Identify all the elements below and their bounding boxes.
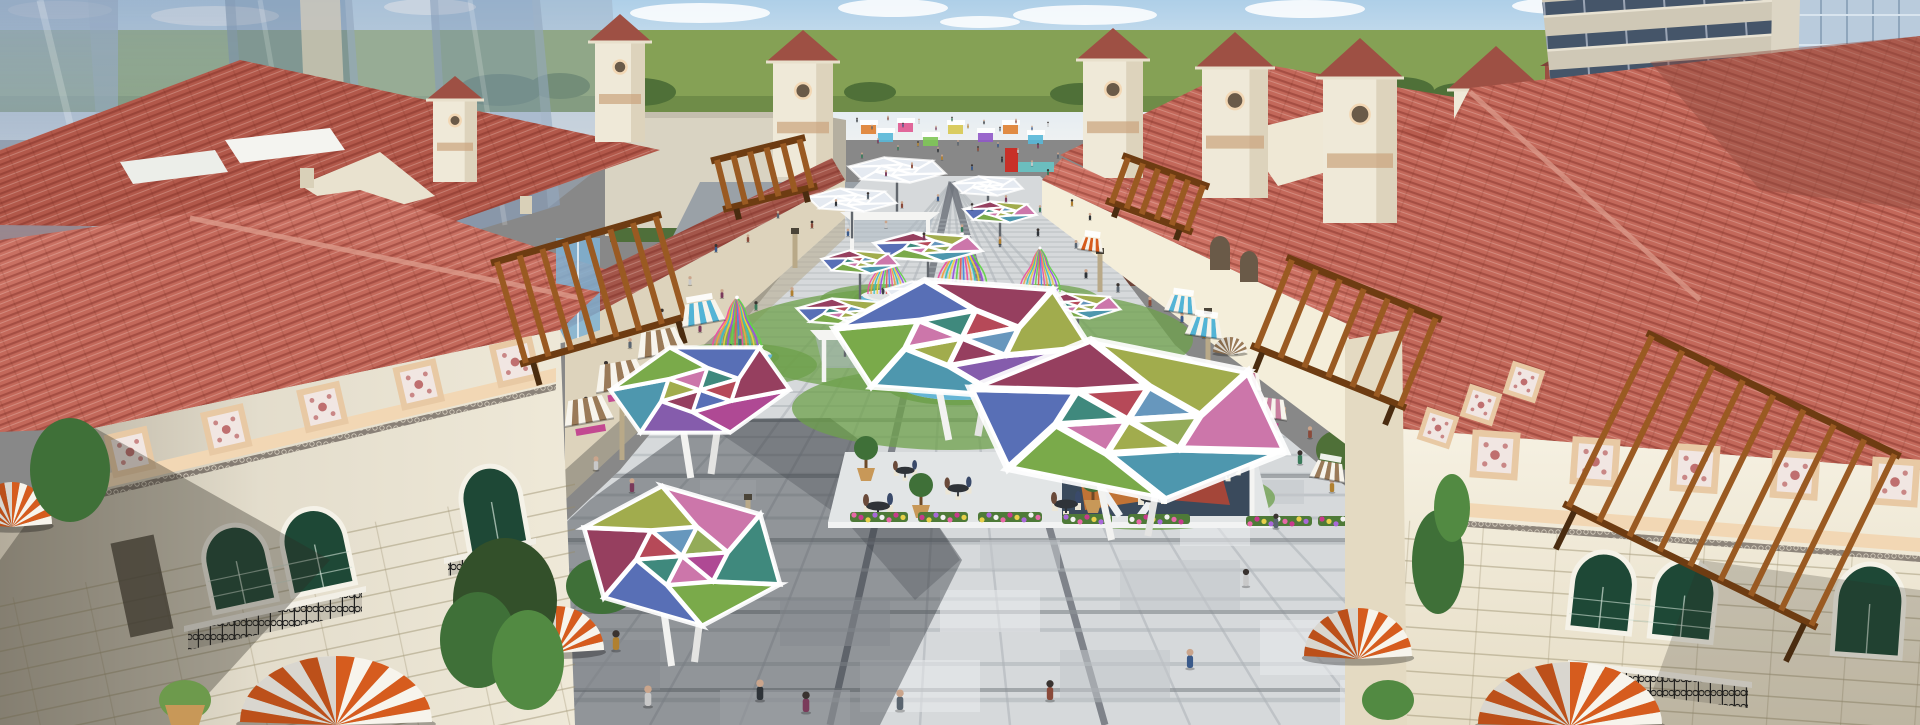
person-head	[896, 689, 904, 697]
person-head	[1037, 143, 1039, 145]
person-head	[923, 232, 926, 235]
person-body	[885, 223, 887, 228]
seated-person	[893, 461, 898, 471]
person-head	[971, 203, 974, 206]
tower-balcony-band	[1206, 136, 1264, 149]
stall-canopy	[1027, 130, 1045, 135]
person-head	[967, 124, 969, 126]
tower-body-shade	[465, 100, 477, 182]
person-head	[937, 194, 940, 197]
person-head	[935, 126, 937, 128]
person	[897, 145, 899, 151]
person	[1001, 157, 1004, 163]
bollard-shaft	[1098, 252, 1103, 292]
flower-cluster	[1289, 521, 1294, 526]
person-body	[901, 204, 903, 209]
seated-person	[887, 493, 893, 505]
bollard-cap	[744, 494, 752, 500]
person-body	[957, 142, 959, 145]
flower-bed	[850, 512, 908, 522]
person-body	[1039, 208, 1041, 213]
person-body	[1298, 455, 1302, 464]
campanile-tower	[1076, 28, 1150, 178]
person	[1057, 153, 1060, 159]
stall-canopy	[977, 128, 995, 133]
person-body	[971, 166, 973, 170]
person-body	[1075, 243, 1078, 248]
seated-person	[863, 494, 869, 506]
person-head	[790, 287, 793, 290]
tree	[492, 610, 564, 710]
plaza-rendering	[0, 0, 1920, 725]
person-head	[1015, 119, 1017, 121]
person-body	[1047, 123, 1048, 126]
flower-cluster	[1171, 517, 1176, 522]
market-stall	[923, 137, 938, 146]
person-body	[877, 140, 879, 143]
cloud	[1013, 5, 1157, 25]
person-body	[918, 120, 919, 123]
person-body	[997, 144, 999, 147]
table-top	[866, 502, 890, 511]
flower-cluster	[1000, 517, 1005, 522]
person-head	[867, 192, 870, 195]
person-head	[1047, 169, 1049, 171]
dome-shade	[0, 482, 12, 527]
chimney	[520, 196, 532, 214]
flower-cluster	[1282, 519, 1287, 524]
person-head	[856, 118, 858, 120]
flower-cluster	[940, 515, 945, 520]
person	[917, 141, 919, 147]
person-body	[628, 342, 631, 348]
person-head	[612, 630, 619, 637]
person-body	[1037, 145, 1039, 148]
flower-cluster	[961, 515, 966, 520]
flower-cluster	[954, 512, 959, 517]
person-body	[935, 127, 936, 130]
paving-slab	[1060, 650, 1170, 698]
person-head	[1116, 283, 1119, 286]
flower-cluster	[851, 512, 856, 517]
person-body	[803, 699, 810, 713]
flower-cluster	[1129, 517, 1134, 522]
tower-balcony-band	[437, 143, 473, 151]
ornamental-tile	[1469, 429, 1520, 480]
person-body	[757, 687, 764, 701]
person-head	[802, 691, 810, 699]
flower-bed	[1246, 516, 1312, 526]
foliage-ball	[854, 436, 878, 460]
person-body	[941, 156, 943, 160]
shrub	[1362, 680, 1414, 720]
person-body	[885, 172, 887, 176]
person-body	[897, 147, 899, 150]
person-head	[901, 201, 904, 204]
person-body	[867, 195, 869, 200]
person-body	[1181, 316, 1184, 322]
cloud	[940, 16, 1020, 28]
flower-cluster	[886, 517, 891, 522]
person-head	[1084, 269, 1087, 272]
cloud	[630, 3, 770, 23]
paving-slab	[1120, 560, 1240, 610]
person-body	[594, 461, 598, 470]
person-head	[847, 229, 850, 232]
person-head	[1031, 160, 1033, 162]
person-body	[1274, 519, 1279, 528]
person-head	[1031, 126, 1033, 128]
person-body	[777, 213, 779, 218]
arched-opening	[1210, 236, 1230, 270]
flower-cluster	[879, 515, 884, 520]
seated-person	[966, 477, 971, 488]
flower-bed	[918, 512, 968, 522]
person-body	[971, 206, 973, 211]
market-stall	[898, 123, 913, 132]
person-head	[977, 146, 979, 148]
person-head	[715, 244, 718, 247]
tower-balcony-band	[1327, 153, 1393, 168]
person-head	[885, 170, 887, 172]
oculus-window	[1105, 82, 1121, 98]
oculus-window	[1226, 92, 1243, 109]
paving-slab	[940, 590, 1040, 632]
person-head	[1273, 514, 1278, 519]
oculus-window	[449, 115, 460, 126]
flower-cluster	[1084, 514, 1089, 519]
ornamental-tile	[1669, 443, 1720, 494]
person-body	[937, 197, 939, 202]
person-body	[1015, 120, 1016, 123]
person-head	[897, 145, 899, 147]
person-head	[957, 140, 959, 142]
person	[1148, 297, 1153, 307]
person-head	[1298, 450, 1303, 455]
person-body	[977, 148, 979, 151]
person-head	[961, 224, 964, 227]
person-body	[747, 237, 749, 242]
person-body	[755, 304, 758, 310]
tower-balcony-band	[599, 94, 641, 104]
person-body	[811, 223, 813, 228]
stall-canopy	[877, 128, 895, 133]
person-body	[902, 124, 903, 127]
person-body	[861, 154, 863, 158]
person-head	[999, 127, 1001, 129]
flower-cluster	[1247, 521, 1252, 526]
flower-cluster	[1035, 515, 1040, 520]
flower-cluster	[1340, 516, 1345, 521]
person-body	[917, 143, 919, 146]
person-body	[715, 247, 718, 252]
cloud	[1245, 0, 1365, 18]
person-head	[594, 456, 599, 461]
person-body	[951, 118, 952, 121]
person-body	[1085, 272, 1088, 278]
person-head	[756, 679, 764, 687]
person-body	[1037, 231, 1039, 236]
person-body	[630, 483, 634, 492]
flower-cluster	[1261, 519, 1266, 524]
person-head	[971, 164, 973, 166]
flower-cluster	[1007, 512, 1012, 517]
person-head	[885, 221, 888, 224]
person-body	[1149, 300, 1152, 306]
flower-cluster	[1326, 519, 1331, 524]
person-head	[1057, 153, 1059, 155]
person	[997, 142, 999, 148]
person-head	[811, 221, 814, 224]
person-body	[999, 239, 1001, 244]
market-stall	[1003, 125, 1018, 134]
person-body	[645, 693, 652, 707]
person-head	[1046, 680, 1053, 687]
flower-cluster	[1157, 519, 1162, 524]
market-stall	[861, 125, 876, 134]
person-head	[1005, 195, 1008, 198]
stall-canopy	[860, 120, 878, 125]
person-body	[1047, 687, 1053, 700]
tree	[30, 418, 110, 522]
flower-cluster	[1077, 519, 1082, 524]
person-head	[644, 685, 652, 693]
person-head	[917, 141, 919, 143]
person-head	[937, 147, 939, 149]
person-head	[1001, 157, 1003, 159]
person-body	[983, 121, 984, 124]
seated-person	[1051, 492, 1057, 504]
person-head	[630, 478, 635, 483]
person	[971, 164, 974, 170]
person-body	[1089, 215, 1091, 220]
person-head	[1308, 426, 1312, 430]
flower-cluster	[858, 515, 863, 520]
tower-body-shade	[1250, 68, 1268, 198]
person-head	[902, 123, 904, 125]
flower-cluster	[1091, 517, 1096, 522]
person-body	[961, 227, 963, 232]
market-stall	[978, 133, 993, 142]
flower-bed	[1128, 514, 1190, 524]
flower-cluster	[1178, 519, 1183, 524]
ornamental-tile	[1869, 456, 1920, 507]
person-body	[1117, 286, 1120, 292]
flower-cluster	[1268, 521, 1273, 526]
flower-cluster	[893, 512, 898, 517]
oculus-window	[614, 61, 627, 74]
person	[1307, 426, 1313, 439]
person-head	[628, 338, 632, 342]
flower-cluster	[1098, 519, 1103, 524]
person-head	[918, 119, 920, 121]
person-body	[937, 149, 939, 152]
flower-cluster	[1303, 519, 1308, 524]
table-top	[895, 467, 914, 474]
person-body	[1243, 575, 1249, 586]
person-body	[1047, 171, 1049, 175]
person-body	[967, 125, 968, 128]
person-head	[1089, 213, 1092, 216]
person	[977, 146, 979, 152]
person	[941, 155, 944, 161]
flower-cluster	[1014, 515, 1019, 520]
person-body	[923, 235, 925, 240]
stall-canopy	[922, 132, 940, 137]
person-body	[1017, 150, 1019, 153]
person-head	[747, 234, 750, 237]
person-head	[1017, 148, 1019, 150]
flower-cluster	[1028, 512, 1033, 517]
cage-finial	[735, 296, 739, 300]
person-head	[738, 335, 742, 339]
person-body	[887, 117, 888, 120]
flower-cluster	[1164, 514, 1169, 519]
flower-cluster	[1254, 516, 1259, 521]
flower-bed	[978, 512, 1042, 522]
person-head	[1148, 297, 1151, 300]
market-stall	[948, 125, 963, 134]
person-body	[1308, 430, 1312, 438]
flower-cluster	[979, 517, 984, 522]
chimney	[300, 168, 314, 188]
cage-finial	[1039, 247, 1042, 250]
person-head	[1071, 199, 1074, 202]
person-body	[698, 326, 701, 332]
market-stall	[1028, 135, 1043, 144]
person-body	[721, 292, 724, 298]
flower-cluster	[926, 517, 931, 522]
person-body	[856, 119, 857, 122]
flower-cluster	[947, 517, 952, 522]
person-head	[951, 117, 953, 119]
table-top	[1054, 500, 1078, 509]
person-head	[1037, 228, 1040, 231]
vine	[1434, 474, 1470, 542]
person-body	[911, 164, 913, 168]
flower-cluster	[1021, 517, 1026, 522]
stall-canopy	[1002, 120, 1020, 125]
stall-canopy	[897, 118, 915, 123]
person-head	[887, 116, 889, 118]
person-head	[1047, 122, 1049, 124]
flower-cluster	[1136, 519, 1141, 524]
person-head	[877, 138, 879, 140]
person-body	[1057, 154, 1059, 158]
tower-balcony-band	[777, 122, 829, 134]
person-body	[999, 128, 1000, 131]
person-body	[871, 126, 872, 129]
person	[1037, 143, 1039, 149]
person-head	[941, 155, 943, 157]
bollard-shaft	[793, 232, 798, 268]
rendering-stage	[0, 0, 1920, 725]
person-head	[754, 301, 757, 304]
person-head	[835, 199, 838, 202]
person-body	[1031, 127, 1032, 130]
person-head	[997, 142, 999, 144]
flower-cluster	[1319, 516, 1324, 521]
person	[957, 140, 959, 146]
gazebo-roof	[840, 212, 940, 220]
person-head	[1187, 649, 1194, 656]
flower-cluster	[1333, 521, 1338, 526]
person-head	[983, 120, 985, 122]
person-body	[1330, 483, 1334, 492]
person-body	[847, 231, 849, 236]
person-head	[720, 289, 723, 292]
foliage-ball	[909, 473, 933, 497]
seated-person	[1075, 491, 1081, 503]
terrace-curb	[828, 522, 1272, 528]
person-body	[613, 637, 619, 650]
paving-slab	[980, 540, 1060, 570]
flower-cluster	[1296, 516, 1301, 521]
oculus-window	[1350, 105, 1369, 124]
tower-body-shade	[1376, 78, 1397, 223]
person-head	[911, 162, 913, 164]
ornamental-tile	[1769, 450, 1820, 501]
person-body	[1005, 198, 1007, 203]
seated-person	[912, 460, 917, 470]
ornamental-tile	[1569, 436, 1620, 487]
flower-cluster	[1070, 517, 1075, 522]
playground-structure	[1005, 148, 1018, 172]
market-stall	[878, 133, 893, 142]
person-body	[1187, 655, 1193, 668]
arched-opening	[1240, 251, 1258, 282]
bollard-cap	[791, 228, 799, 234]
person-body	[738, 339, 741, 345]
flower-cluster	[933, 512, 938, 517]
flower-cluster	[986, 512, 991, 517]
person-head	[777, 211, 780, 214]
tower-balcony-band	[1087, 121, 1139, 133]
person-head	[1075, 240, 1078, 243]
flower-cluster	[900, 515, 905, 520]
flower-cluster	[919, 515, 924, 520]
person-head	[1243, 569, 1249, 575]
person	[937, 147, 939, 153]
person-head	[871, 125, 873, 127]
person-head	[999, 236, 1002, 239]
table-top	[947, 484, 969, 492]
flower-cluster	[872, 512, 877, 517]
person-head	[688, 276, 691, 279]
person-body	[689, 279, 692, 285]
person-body	[1001, 158, 1003, 162]
person-head	[861, 153, 863, 155]
flower-cluster	[1063, 514, 1068, 519]
person-body	[1031, 162, 1033, 166]
person-body	[897, 697, 904, 711]
person-body	[835, 202, 837, 207]
stall-canopy	[947, 120, 965, 125]
oculus-window	[795, 83, 811, 99]
person-body	[1071, 202, 1073, 207]
tree	[844, 82, 896, 102]
flower-cluster	[865, 517, 870, 522]
tower-body-shade	[631, 42, 645, 142]
person-head	[1039, 205, 1042, 208]
person	[861, 153, 864, 159]
flower-cluster	[993, 515, 998, 520]
planter-pot	[165, 705, 205, 725]
person-body	[791, 290, 794, 296]
seated-person	[945, 477, 950, 488]
